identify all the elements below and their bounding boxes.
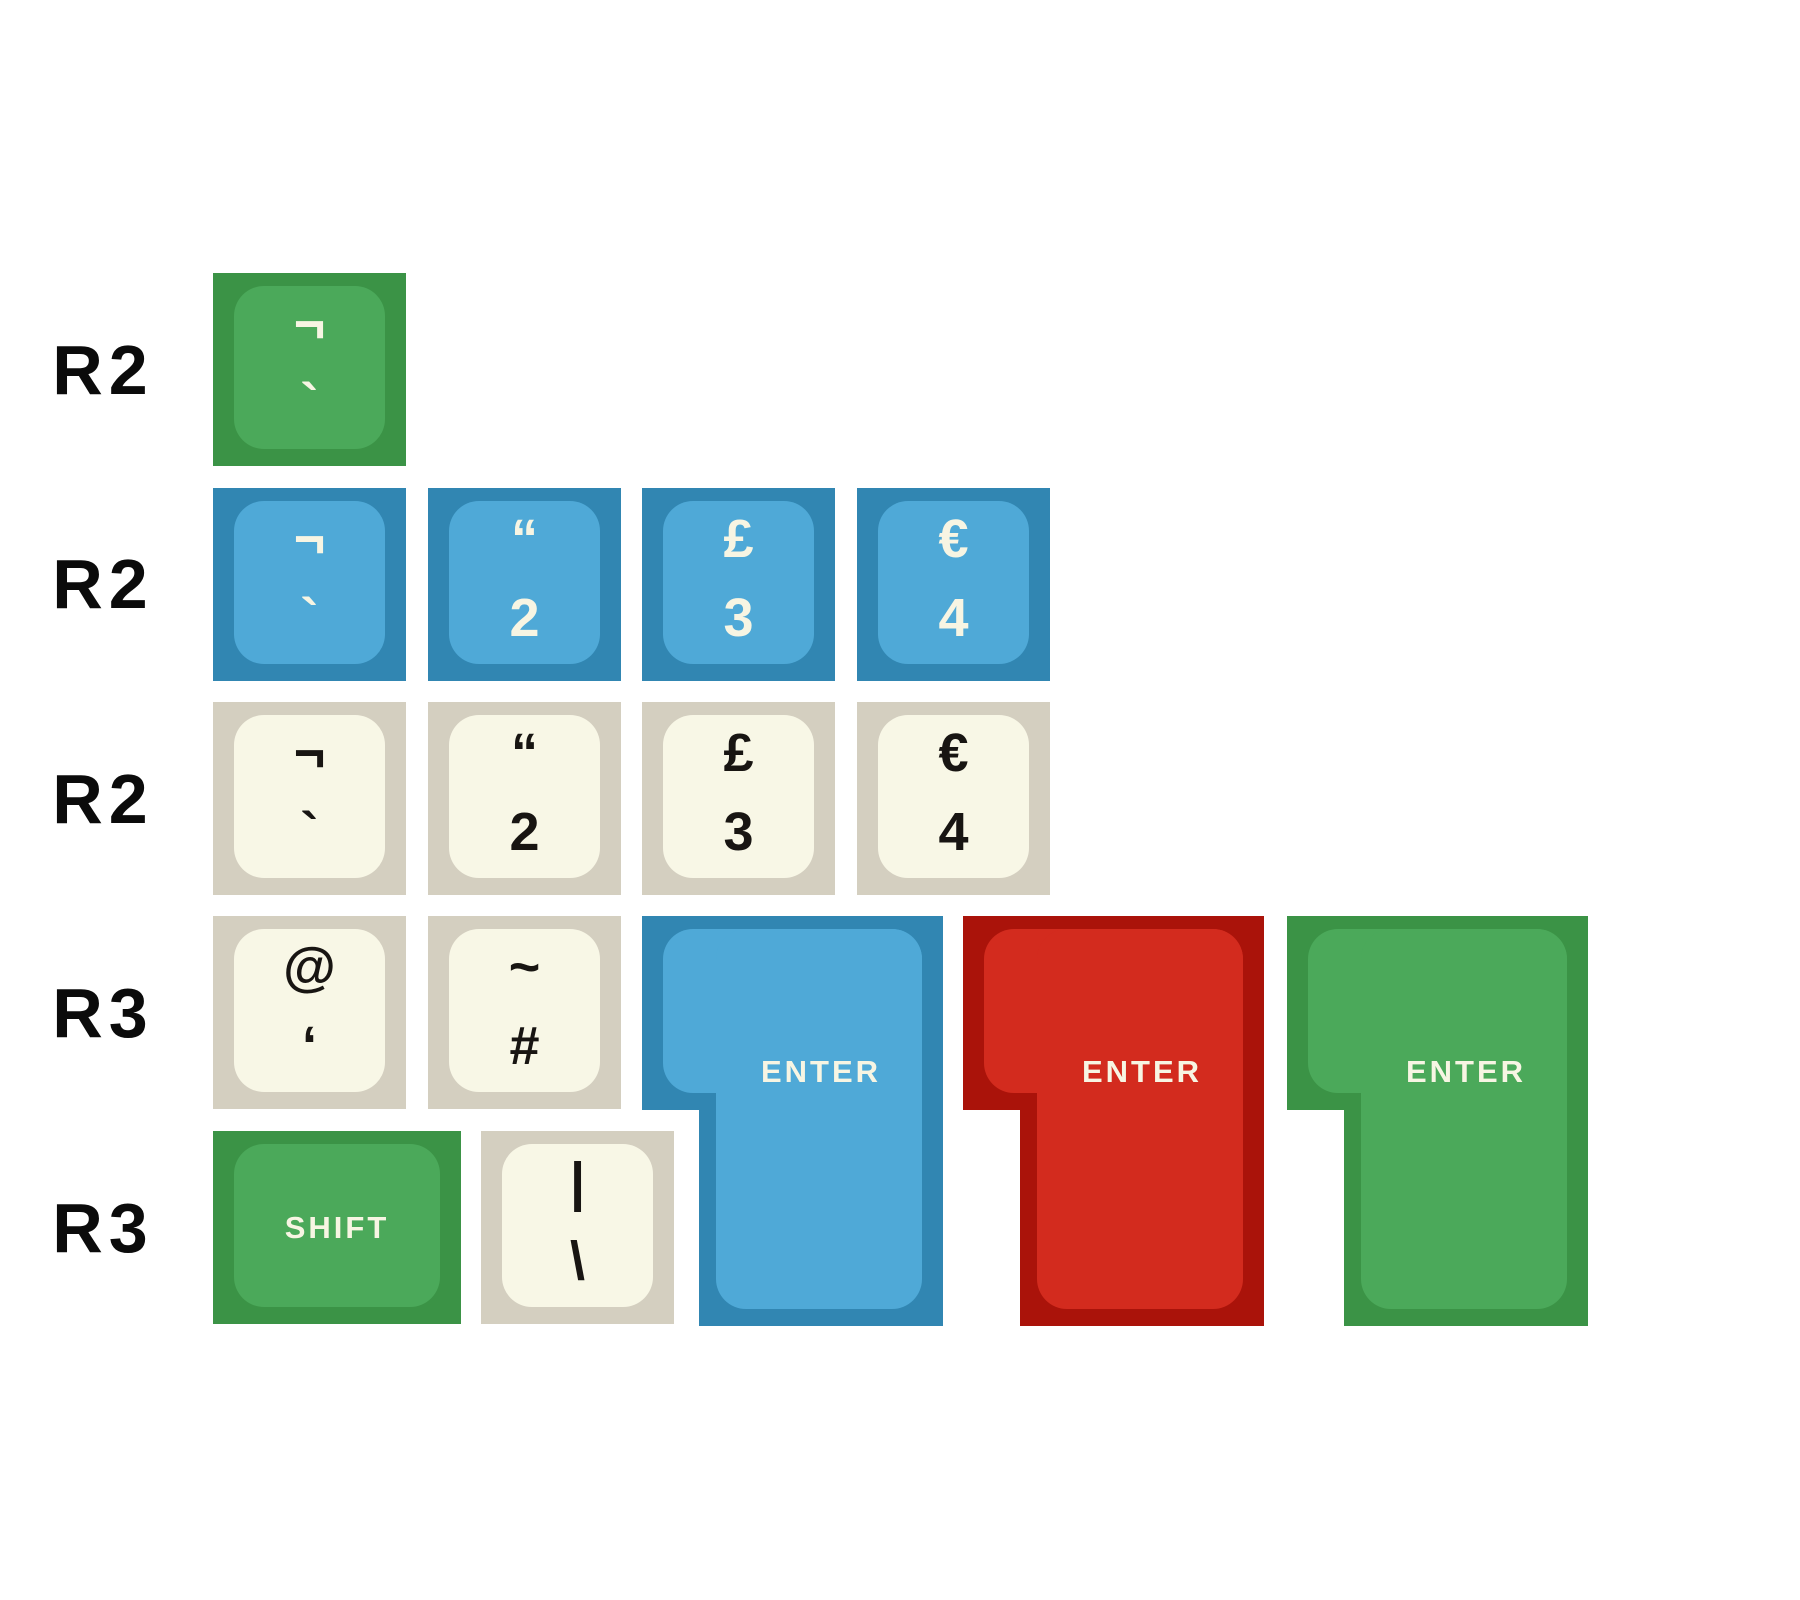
keycap-surface [716, 929, 922, 1309]
keycap-surface [1037, 929, 1243, 1309]
row-label-r3-lower: R3 [36, 1186, 170, 1270]
keycap-2-blue[interactable]: “ 2 [428, 488, 621, 681]
keycap-legend-bottom: # [428, 1017, 621, 1075]
keycap-legend: ENTER [699, 1054, 943, 1090]
keycap-legend: SHIFT [213, 1131, 461, 1324]
keycap-legend-bottom: 4 [857, 589, 1050, 647]
iso-enter-green[interactable]: ENTER [1287, 916, 1588, 1326]
keycap-4-blue[interactable]: € 4 [857, 488, 1050, 681]
row-label-r2-blue: R2 [36, 542, 170, 626]
keycap-legend-top: ¬ [213, 295, 406, 353]
keycap-grave-blue[interactable]: ¬ ` [213, 488, 406, 681]
keycap-backslash-cream[interactable]: | \ [481, 1131, 674, 1324]
keycap-4-cream[interactable]: € 4 [857, 702, 1050, 895]
keycap-legend-bottom: ` [213, 374, 406, 432]
keycap-2-cream[interactable]: “ 2 [428, 702, 621, 895]
keycap-quote-cream[interactable]: @ ‘ [213, 916, 406, 1109]
keycap-legend-bottom: 2 [428, 589, 621, 647]
keycap-legend-bottom: ` [213, 589, 406, 647]
keycap-surface [1361, 929, 1567, 1309]
keycap-legend-bottom: 3 [642, 589, 835, 647]
keycap-3-blue[interactable]: £ 3 [642, 488, 835, 681]
keycap-hash-cream[interactable]: ~ # [428, 916, 621, 1109]
keycap-legend-top: | [481, 1153, 674, 1211]
keycap-legend: ENTER [1020, 1054, 1264, 1090]
keycap-legend-top: ¬ [213, 724, 406, 782]
keycap-legend-top: £ [642, 510, 835, 568]
keycap-legend-bottom: ‘ [213, 1017, 406, 1075]
keycap-legend-top: @ [213, 938, 406, 996]
keycap-legend-top: ~ [428, 938, 621, 996]
keycap-legend-top: “ [428, 510, 621, 568]
keycap-legend-top: £ [642, 724, 835, 782]
iso-enter-blue[interactable]: ENTER [642, 916, 943, 1326]
keycap-3-cream[interactable]: £ 3 [642, 702, 835, 895]
keycap-legend-bottom: \ [481, 1232, 674, 1290]
keycap-legend-bottom: 3 [642, 803, 835, 861]
keycap-legend-bottom: 2 [428, 803, 621, 861]
keycap-kit-layout: R2 R2 R2 R3 R3 ¬ ` ¬ ` “ 2 £ 3 € 4 ¬ ` “… [0, 0, 1800, 1600]
keycap-legend-top: ¬ [213, 510, 406, 568]
keycap-legend-bottom: ` [213, 803, 406, 861]
keycap-legend: ENTER [1344, 1054, 1588, 1090]
keycap-grave-cream[interactable]: ¬ ` [213, 702, 406, 895]
keycap-shift-green[interactable]: SHIFT [213, 1131, 461, 1324]
keycap-grave-green[interactable]: ¬ ` [213, 273, 406, 466]
row-label-r3-upper: R3 [36, 971, 170, 1055]
keycap-legend-top: € [857, 724, 1050, 782]
keycap-legend-top: € [857, 510, 1050, 568]
keycap-legend-bottom: 4 [857, 803, 1050, 861]
keycap-legend-top: “ [428, 724, 621, 782]
row-label-r2-cream: R2 [36, 757, 170, 841]
row-label-r2-top: R2 [36, 328, 170, 412]
iso-enter-red[interactable]: ENTER [963, 916, 1264, 1326]
